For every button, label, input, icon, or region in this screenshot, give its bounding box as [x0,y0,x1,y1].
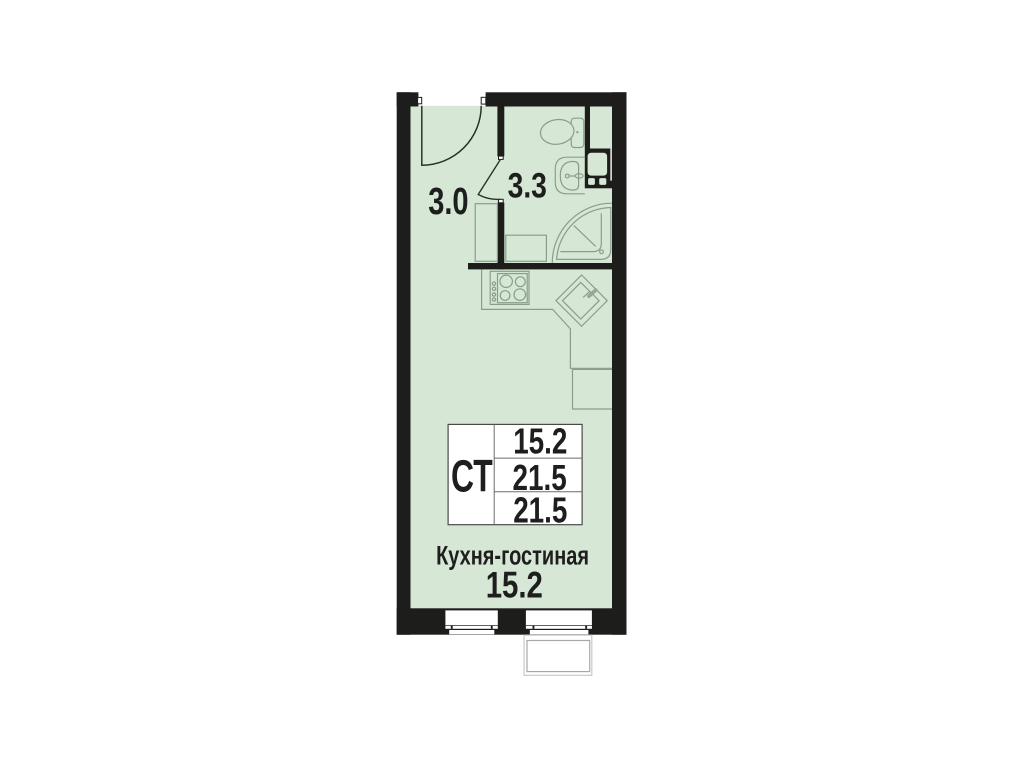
svg-text:3.0: 3.0 [428,181,468,223]
svg-text:21.5: 21.5 [513,490,567,531]
svg-text:СТ: СТ [451,451,493,502]
svg-text:15.2: 15.2 [513,421,567,462]
svg-text:3.3: 3.3 [508,166,547,205]
svg-text:15.2: 15.2 [486,563,543,605]
